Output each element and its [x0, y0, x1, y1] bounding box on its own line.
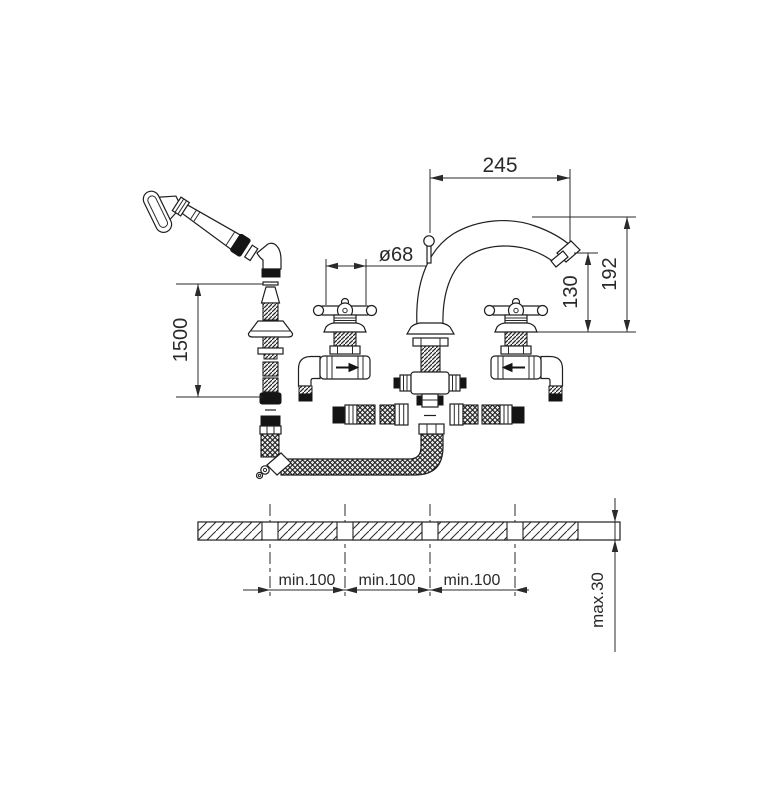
deck-hatch-segment	[438, 522, 507, 540]
hose-black-nut	[260, 393, 281, 404]
port-tab-right	[438, 396, 443, 405]
connector-braid	[357, 405, 375, 424]
left-valve-tail-thread	[299, 386, 312, 394]
background	[0, 0, 774, 800]
hose-coupling-hex	[260, 426, 281, 434]
hose-end-ring	[261, 466, 269, 474]
connector-hex	[500, 405, 512, 424]
shower-hose-vertical	[261, 434, 279, 457]
hose-spiral-upper	[263, 362, 278, 376]
dim-label-deck-thickness: max.30	[588, 572, 607, 628]
hose-coupling-band	[261, 416, 280, 426]
left-valve-tail-tip	[299, 394, 312, 401]
connector-hex	[345, 405, 357, 424]
port-tab-left	[417, 396, 422, 405]
diverter-rod	[427, 246, 431, 263]
bath-mixer-installation-drawing: 245 ø68 130 192 1500 m	[0, 0, 774, 800]
dim-label-hole-spacing-1: min.100	[279, 572, 336, 589]
deck-hatch-segment	[523, 522, 578, 540]
dim-label-hole-spacing-2: min.100	[359, 572, 416, 589]
right-valve-tail-thread	[549, 386, 562, 394]
hose-spiral-lower	[263, 378, 278, 392]
connector-hex	[395, 404, 408, 425]
holder-locknut	[258, 348, 283, 354]
dim-label-spout-outlet-height: 130	[560, 275, 582, 308]
connector-black-cap	[512, 407, 524, 423]
holder-thread	[263, 303, 278, 320]
tee-cap-right	[449, 375, 460, 391]
connector-braid	[380, 405, 395, 424]
dim-label-handle-diameter: ø68	[379, 244, 413, 266]
connector-hex	[450, 404, 463, 425]
tee-body	[411, 372, 449, 394]
dim-label-hole-spacing-3: min.100	[444, 572, 501, 589]
tee-pin-right	[460, 378, 466, 388]
hose-end-ring	[257, 473, 263, 479]
hose-top-nut	[419, 424, 444, 434]
holder-washer	[263, 282, 278, 285]
dim-label-spout-top-height: 192	[599, 257, 621, 290]
holder-elbow-band	[262, 269, 280, 277]
dimension-hole-spacing: min.100 min.100 min.100	[243, 572, 529, 593]
right-valve-tail-tip	[549, 394, 562, 401]
spout-base-flare	[407, 323, 454, 334]
connector-black-cap	[333, 407, 345, 423]
holder-shank	[263, 337, 278, 348]
deck-hatch-segment	[198, 522, 262, 540]
connector-braid	[463, 405, 478, 424]
tee-cap-left	[400, 375, 411, 391]
diverter-knob	[424, 236, 434, 246]
tee-pin-left	[394, 378, 400, 388]
spout-flange	[413, 338, 448, 346]
deck-hatch-segment	[353, 522, 422, 540]
holder-shank-tail	[264, 354, 277, 359]
deck-hatch-segment	[278, 522, 337, 540]
technical-drawing-canvas: 245 ø68 130 192 1500 m	[0, 0, 774, 800]
spout-shank-thread	[421, 346, 440, 372]
dim-label-hose-length: 1500	[170, 318, 192, 363]
connector-braid	[482, 405, 500, 424]
dim-label-spout-reach: 245	[482, 154, 517, 177]
